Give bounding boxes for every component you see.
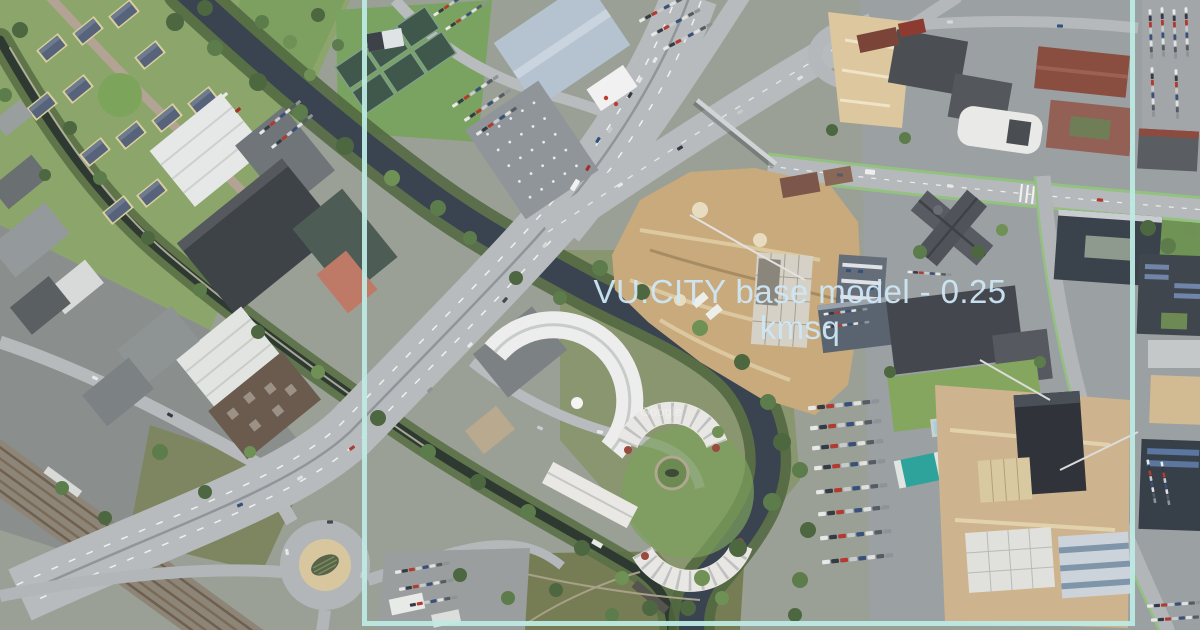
east-edge-blocks: [1137, 0, 1200, 531]
roundabout: [280, 520, 370, 610]
model-label: VU.CITY base model - 0.25 kmsq: [500, 274, 1100, 346]
model-label-line1: VU.CITY base model - 0.25: [500, 274, 1100, 310]
model-label-line2: kmsq: [500, 310, 1100, 346]
vucity-screenshot: Google VU.CITY base model - 0.25 kmsq: [0, 0, 1200, 630]
